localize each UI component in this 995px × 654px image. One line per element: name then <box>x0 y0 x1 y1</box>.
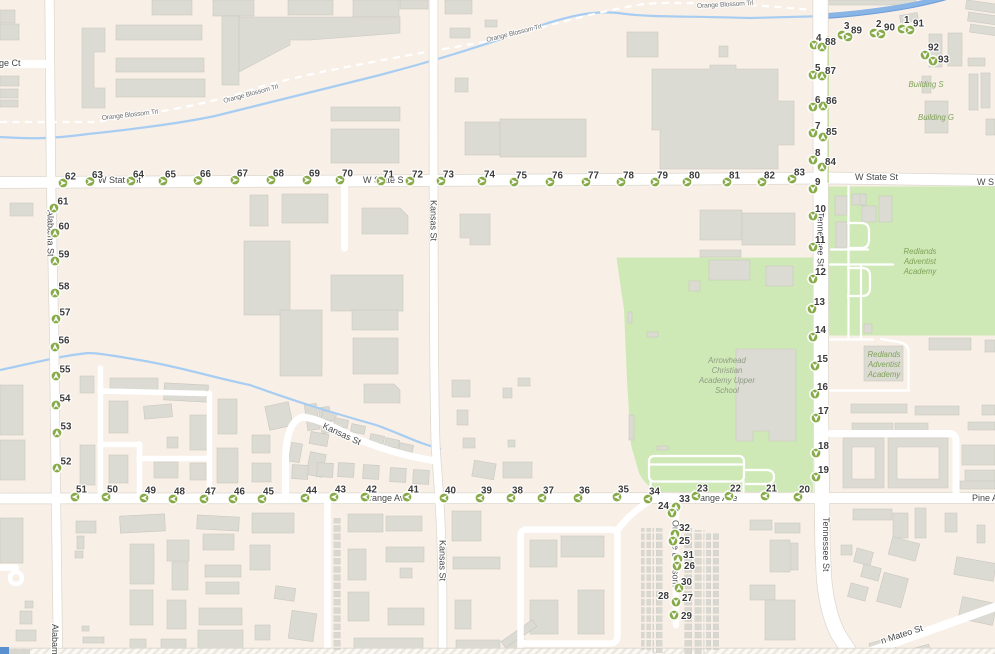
svg-text:65: 65 <box>165 170 176 181</box>
svg-text:9: 9 <box>815 177 821 188</box>
svg-text:W S: W S <box>977 177 994 187</box>
svg-text:19: 19 <box>818 465 829 476</box>
svg-text:88: 88 <box>825 37 836 48</box>
svg-text:84: 84 <box>825 157 836 168</box>
svg-text:92: 92 <box>928 43 939 54</box>
svg-text:78: 78 <box>623 171 634 182</box>
svg-text:Redlands: Redlands <box>868 350 901 359</box>
svg-text:87: 87 <box>825 66 836 77</box>
svg-text:76: 76 <box>552 171 563 182</box>
svg-text:45: 45 <box>263 487 274 498</box>
svg-text:50: 50 <box>107 485 118 496</box>
svg-text:59: 59 <box>59 250 70 261</box>
svg-text:Academy: Academy <box>867 370 902 379</box>
svg-text:7: 7 <box>815 121 821 132</box>
svg-text:1: 1 <box>904 15 910 26</box>
svg-text:70: 70 <box>342 169 353 180</box>
svg-text:82: 82 <box>764 171 775 182</box>
svg-text:15: 15 <box>817 354 828 365</box>
svg-text:6: 6 <box>815 95 821 106</box>
svg-text:Christian: Christian <box>712 366 743 375</box>
svg-text:Redlands: Redlands <box>904 247 937 256</box>
svg-text:20: 20 <box>799 485 810 496</box>
svg-text:3: 3 <box>844 21 850 32</box>
svg-text:40: 40 <box>445 486 456 497</box>
svg-text:29: 29 <box>681 611 692 622</box>
svg-text:23: 23 <box>697 484 708 495</box>
svg-text:69: 69 <box>309 169 320 180</box>
svg-text:49: 49 <box>145 486 156 497</box>
svg-text:93: 93 <box>938 55 949 66</box>
svg-text:Pine A: Pine A <box>972 493 995 503</box>
svg-text:57: 57 <box>60 308 71 319</box>
svg-text:34: 34 <box>649 487 660 498</box>
svg-text:27: 27 <box>682 593 693 604</box>
svg-text:89: 89 <box>851 26 862 37</box>
svg-text:73: 73 <box>443 170 454 181</box>
svg-text:21: 21 <box>766 484 777 495</box>
svg-text:52: 52 <box>61 457 72 468</box>
svg-text:ange Ct: ange Ct <box>0 58 21 68</box>
svg-text:43: 43 <box>335 485 346 496</box>
svg-text:Academy Upper: Academy Upper <box>698 376 755 385</box>
svg-text:64: 64 <box>133 170 144 181</box>
svg-text:56: 56 <box>59 336 70 347</box>
svg-text:55: 55 <box>60 365 71 376</box>
svg-text:47: 47 <box>205 487 216 498</box>
svg-text:60: 60 <box>59 222 70 233</box>
svg-text:85: 85 <box>826 127 837 138</box>
svg-text:42: 42 <box>366 485 377 496</box>
svg-text:W State St: W State St <box>855 172 899 182</box>
svg-text:33: 33 <box>679 494 690 505</box>
svg-text:25: 25 <box>679 536 690 547</box>
svg-text:80: 80 <box>689 171 700 182</box>
svg-text:11: 11 <box>815 235 826 246</box>
svg-text:26: 26 <box>684 561 695 572</box>
svg-text:61: 61 <box>58 197 69 208</box>
svg-text:36: 36 <box>579 486 590 497</box>
svg-text:38: 38 <box>512 486 523 497</box>
svg-text:14: 14 <box>815 325 826 336</box>
svg-text:32: 32 <box>679 523 690 534</box>
svg-text:22: 22 <box>730 484 741 495</box>
svg-text:37: 37 <box>543 486 554 497</box>
svg-text:Academy: Academy <box>903 267 938 276</box>
svg-text:86: 86 <box>826 96 837 107</box>
svg-text:Kansas St: Kansas St <box>438 540 448 582</box>
svg-text:74: 74 <box>484 170 495 181</box>
svg-text:Building S: Building S <box>908 80 944 89</box>
svg-text:28: 28 <box>658 591 669 602</box>
svg-text:58: 58 <box>59 282 70 293</box>
svg-text:Adventist: Adventist <box>903 257 937 266</box>
svg-text:5: 5 <box>815 63 821 74</box>
svg-text:75: 75 <box>516 171 527 182</box>
svg-text:51: 51 <box>76 485 87 496</box>
svg-text:39: 39 <box>481 486 492 497</box>
svg-text:67: 67 <box>237 169 248 180</box>
svg-text:83: 83 <box>794 168 805 179</box>
svg-text:62: 62 <box>65 172 76 183</box>
svg-text:30: 30 <box>681 577 692 588</box>
svg-text:66: 66 <box>200 169 211 180</box>
svg-text:10: 10 <box>815 204 826 215</box>
svg-text:44: 44 <box>306 486 317 497</box>
svg-text:Building G: Building G <box>918 113 954 122</box>
svg-text:77: 77 <box>588 171 599 182</box>
svg-text:91: 91 <box>913 19 924 30</box>
svg-text:Adventist: Adventist <box>867 360 901 369</box>
svg-text:63: 63 <box>92 170 103 181</box>
svg-text:4: 4 <box>816 33 822 44</box>
svg-text:Arrowhead: Arrowhead <box>707 356 746 365</box>
svg-text:81: 81 <box>729 171 740 182</box>
svg-text:18: 18 <box>818 441 829 452</box>
svg-text:71: 71 <box>383 170 394 181</box>
svg-text:12: 12 <box>815 267 826 278</box>
svg-text:79: 79 <box>657 171 668 182</box>
svg-text:31: 31 <box>683 550 694 561</box>
svg-text:53: 53 <box>61 422 72 433</box>
svg-text:School: School <box>715 386 739 395</box>
svg-text:35: 35 <box>618 485 629 496</box>
svg-text:Kansas St: Kansas St <box>429 200 439 242</box>
svg-text:72: 72 <box>412 170 423 181</box>
svg-text:46: 46 <box>234 487 245 498</box>
svg-text:Alabama St: Alabama St <box>50 624 60 654</box>
svg-text:90: 90 <box>884 23 895 34</box>
svg-text:24: 24 <box>658 501 669 512</box>
svg-text:54: 54 <box>60 394 71 405</box>
svg-text:Tennessee St: Tennessee St <box>821 517 831 572</box>
svg-text:13: 13 <box>814 297 825 308</box>
svg-text:17: 17 <box>818 406 829 417</box>
svg-text:68: 68 <box>273 169 284 180</box>
svg-text:16: 16 <box>817 382 828 393</box>
svg-text:48: 48 <box>174 487 185 498</box>
svg-text:8: 8 <box>815 148 821 159</box>
svg-text:2: 2 <box>876 19 882 30</box>
svg-text:41: 41 <box>408 485 419 496</box>
